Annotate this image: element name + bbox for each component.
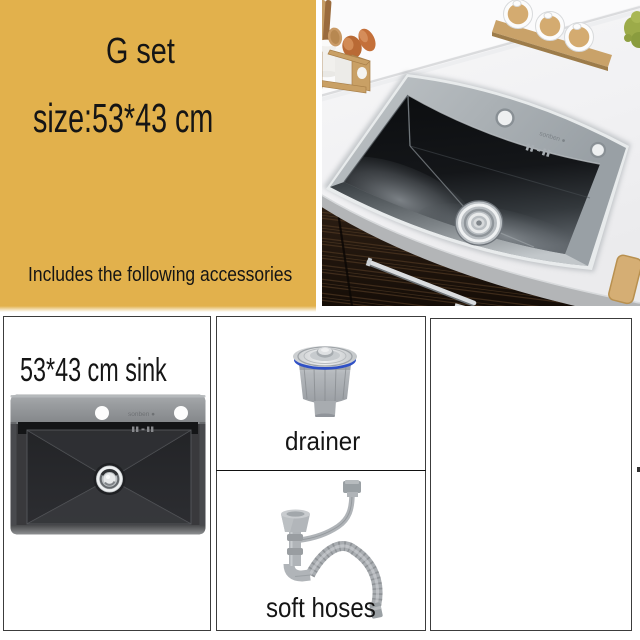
svg-text:sonben ●: sonben ● <box>128 411 155 418</box>
